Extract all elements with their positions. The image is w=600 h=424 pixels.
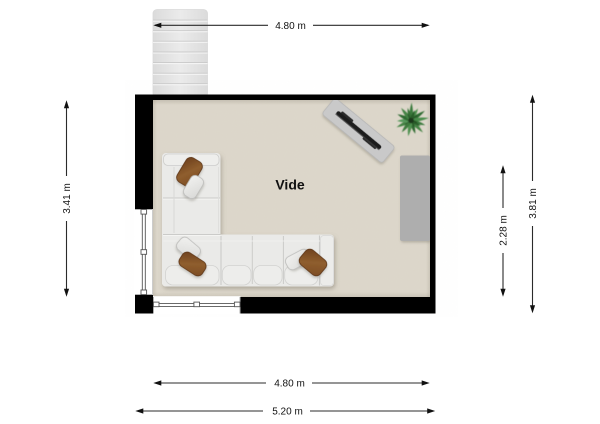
svg-text:4.80 m: 4.80 m [274,379,305,390]
svg-text:4.80 m: 4.80 m [275,21,306,32]
svg-text:3.41 m: 3.41 m [62,183,73,214]
svg-text:2.28 m: 2.28 m [499,215,510,246]
svg-text:Vide: Vide [275,177,305,193]
svg-text:5.20 m: 5.20 m [272,407,303,418]
svg-text:3.81 m: 3.81 m [528,188,539,219]
